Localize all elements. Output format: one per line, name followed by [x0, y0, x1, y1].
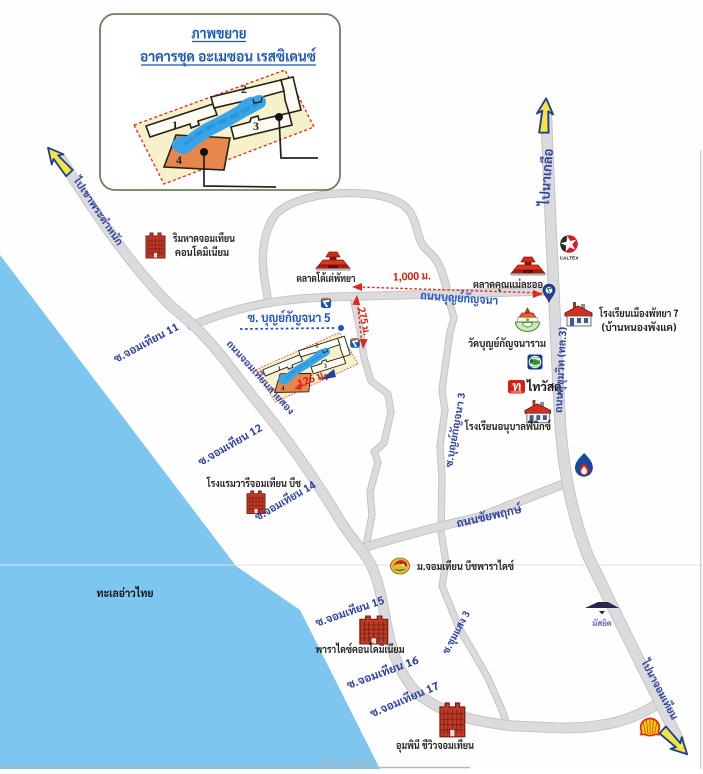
svg-text:Alpha Capital: Alpha Capital	[317, 757, 372, 767]
svg-text:1: 1	[172, 118, 178, 132]
svg-text:4: 4	[176, 153, 182, 167]
svg-text:2: 2	[241, 82, 247, 96]
svg-text:CALTEX: CALTEX	[560, 256, 580, 262]
svg-text:3: 3	[253, 119, 259, 133]
svg-text:1: 1	[277, 365, 281, 372]
svg-text:3: 3	[323, 363, 327, 370]
svg-text:2: 2	[315, 342, 319, 349]
